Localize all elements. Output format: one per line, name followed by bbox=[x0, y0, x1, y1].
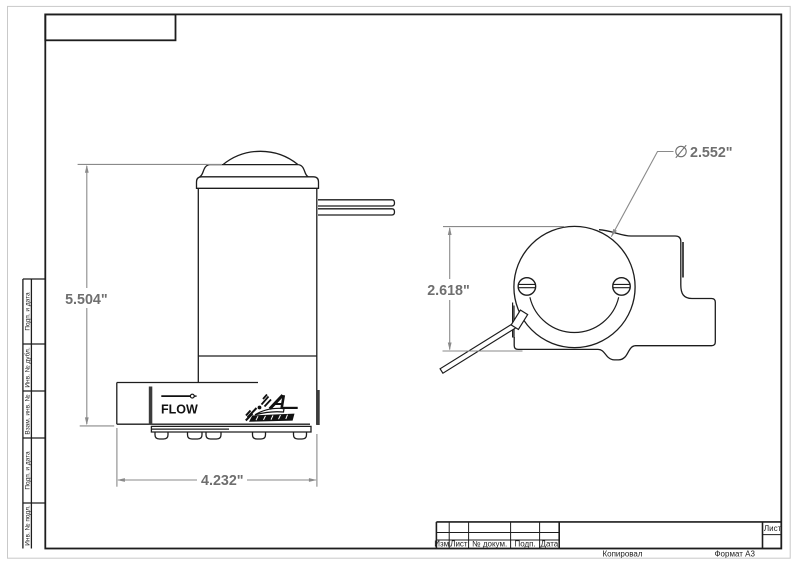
svg-text:2.552": 2.552" bbox=[690, 145, 733, 161]
svg-text:Подп. и дата: Подп. и дата bbox=[25, 451, 32, 490]
svg-text:Подп.: Подп. bbox=[514, 540, 535, 549]
svg-text:Формат А3: Формат А3 bbox=[714, 549, 755, 558]
svg-text:Лист: Лист bbox=[764, 524, 782, 533]
svg-text:FLOW: FLOW bbox=[161, 403, 198, 417]
svg-text:4.232": 4.232" bbox=[201, 473, 244, 489]
svg-text:Изм.: Изм. bbox=[434, 540, 451, 549]
svg-text:Инв. № подл.: Инв. № подл. bbox=[25, 505, 32, 546]
svg-text:Лист: Лист bbox=[450, 540, 468, 549]
svg-text:№ докум.: № докум. bbox=[472, 540, 507, 549]
svg-text:2.618": 2.618" bbox=[427, 283, 470, 299]
svg-text:5.504": 5.504" bbox=[65, 292, 108, 308]
svg-text:Инв. № дубл.: Инв. № дубл. bbox=[24, 347, 32, 387]
svg-text:Дата: Дата bbox=[541, 540, 559, 549]
svg-text:Копировал: Копировал bbox=[602, 549, 642, 558]
svg-text:Взам. инв. №: Взам. инв. № bbox=[25, 394, 32, 434]
svg-text:Подп. и дата: Подп. и дата bbox=[25, 292, 32, 331]
